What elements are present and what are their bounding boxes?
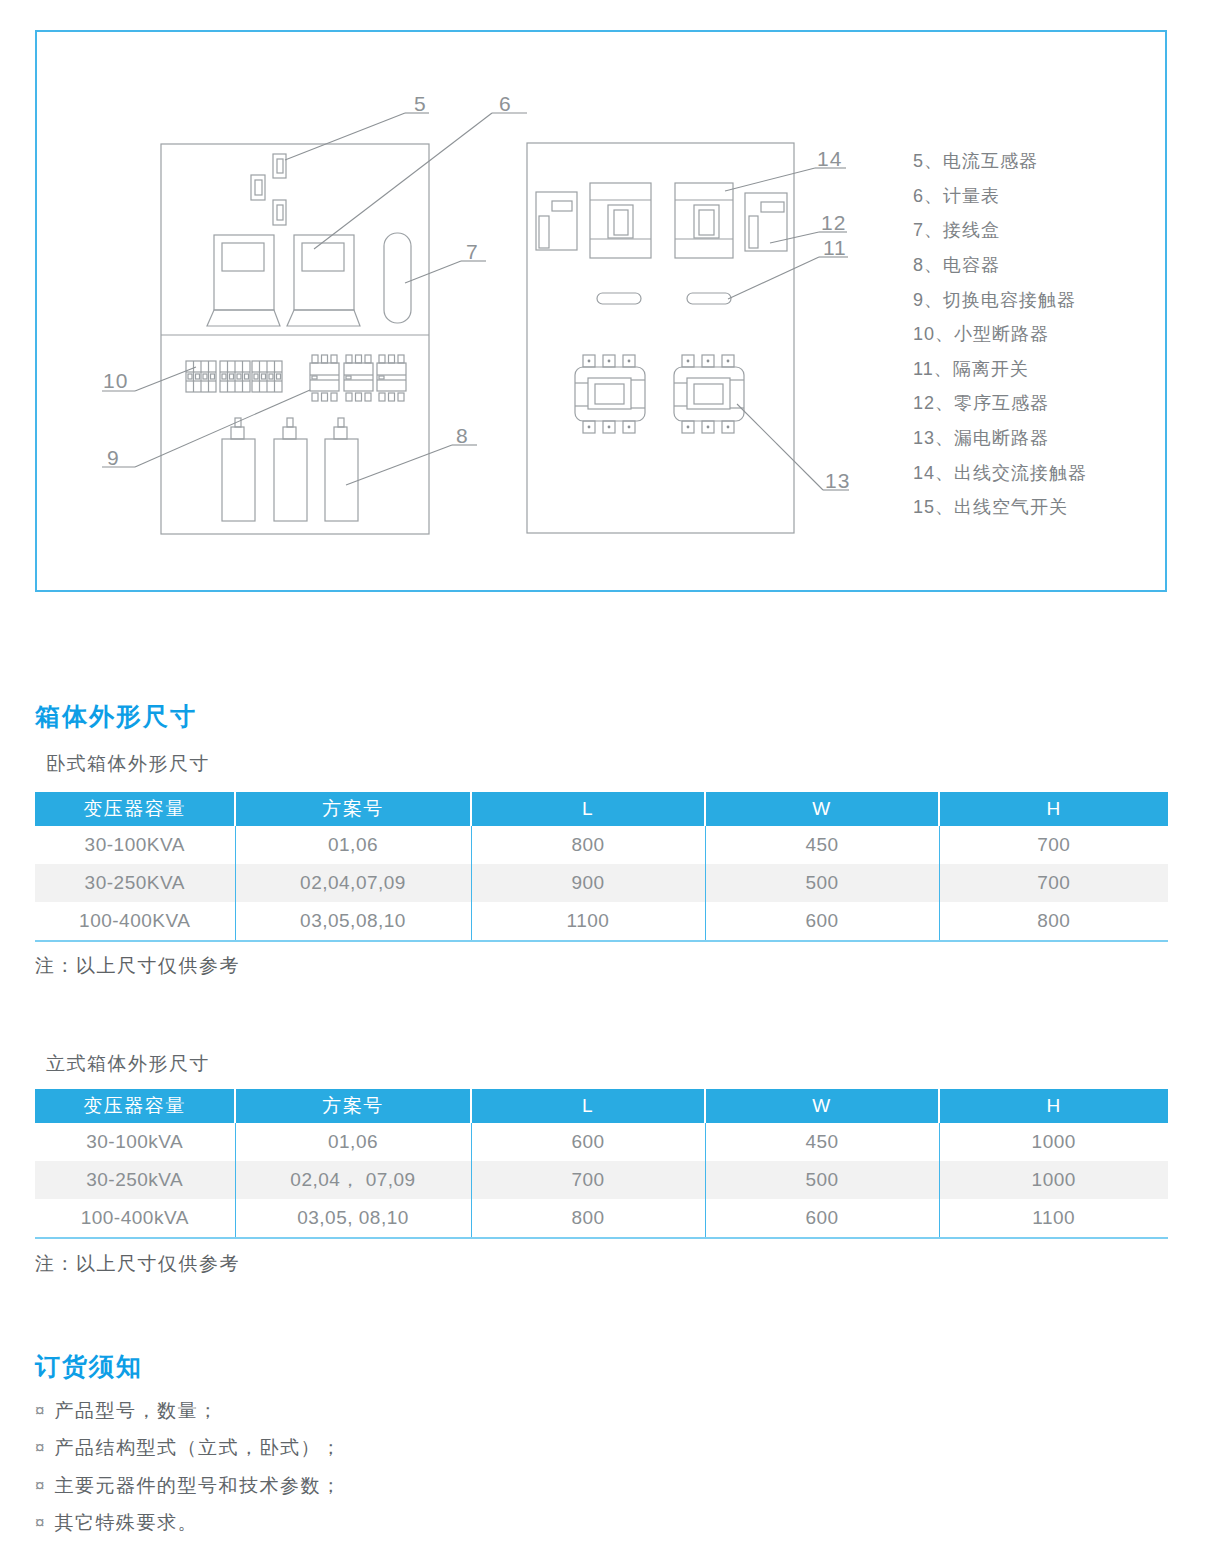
currency-bullet-icon: ¤ <box>35 1401 44 1421</box>
legend-item: 14、出线交流接触器 <box>913 455 1087 490</box>
column-header: H <box>939 792 1168 826</box>
table-cell: 1000 <box>939 1161 1168 1199</box>
currency-bullet-icon: ¤ <box>35 1476 44 1496</box>
current-transformers <box>251 154 286 225</box>
table-row: 30-250KVA 02,04,07,09 900 500 700 <box>35 864 1168 902</box>
table-cell: 01,06 <box>235 826 471 864</box>
list-item: ¤ 产品结构型式（立式，卧式）； <box>35 1430 341 1468</box>
callout-6: 6 <box>314 92 527 249</box>
column-header: L <box>471 792 705 826</box>
table-cell: 500 <box>705 1161 939 1199</box>
table-cell: 02,04,07,09 <box>235 864 471 902</box>
column-header: W <box>705 792 939 826</box>
capacitor-contactors <box>310 355 406 401</box>
table-cell: 700 <box>939 864 1168 902</box>
diagram-panel: 5 6 7 10 9 8 1 <box>35 30 1167 592</box>
left-cabinet-drawing <box>161 144 429 534</box>
junction-box <box>384 233 411 323</box>
table-cell: 700 <box>471 1161 705 1199</box>
table-cell: 30-100KVA <box>35 826 235 864</box>
column-header: 变压器容量 <box>35 1089 235 1123</box>
table-cell: 450 <box>705 826 939 864</box>
table-cell: 800 <box>471 1199 705 1238</box>
list-item: ¤ 产品型号，数量； <box>35 1392 341 1430</box>
callout-10: 10 <box>102 367 196 392</box>
table-row: 30-100kVA 01,06 600 450 1000 <box>35 1123 1168 1161</box>
ordering-notes-list: ¤ 产品型号，数量； ¤ 产品结构型式（立式，卧式）； ¤ 主要元器件的型号和技… <box>35 1392 341 1542</box>
table-cell: 30-100kVA <box>35 1123 235 1161</box>
svg-text:9: 9 <box>107 446 120 469</box>
component-legend: 5、电流互感器 6、计量表 7、接线盒 8、电容器 9、切换电容接触器 10、小… <box>913 144 1087 525</box>
table-cell: 500 <box>705 864 939 902</box>
mini-circuit-breakers <box>186 361 282 392</box>
column-header: H <box>939 1089 1168 1123</box>
callout-11: 11 <box>728 236 848 299</box>
column-header: W <box>705 1089 939 1123</box>
table-cell: 600 <box>471 1123 705 1161</box>
section-title-dimensions: 箱体外形尺寸 <box>35 700 197 733</box>
table-cell: 1100 <box>471 902 705 941</box>
svg-text:6: 6 <box>499 92 512 115</box>
right-cabinet-drawing <box>527 143 794 533</box>
column-header: 方案号 <box>235 792 471 826</box>
list-item: ¤ 主要元器件的型号和技术参数； <box>35 1467 341 1505</box>
subtitle-vertical-cabinet: 立式箱体外形尺寸 <box>46 1051 210 1077</box>
note-vertical-table: 注：以上尺寸仅供参考 <box>35 1251 240 1277</box>
isolating-switches <box>597 293 731 304</box>
outgoing-ac-contactors <box>575 355 744 433</box>
ordering-item-text: 其它特殊要求。 <box>54 1510 198 1536</box>
capacitors <box>222 418 358 521</box>
subtitle-horizontal-cabinet: 卧式箱体外形尺寸 <box>46 751 210 777</box>
table-cell: 02,04， 07,09 <box>235 1161 471 1199</box>
table-row: 30-250kVA 02,04， 07,09 700 500 1000 <box>35 1161 1168 1199</box>
svg-text:8: 8 <box>456 424 469 447</box>
section-title-ordering: 订货须知 <box>35 1350 143 1383</box>
table-cell: 30-250KVA <box>35 864 235 902</box>
currency-bullet-icon: ¤ <box>35 1438 44 1458</box>
legend-item: 8、电容器 <box>913 248 1087 283</box>
callout-5: 5 <box>285 92 429 160</box>
legend-item: 5、电流互感器 <box>913 144 1087 179</box>
column-header: L <box>471 1089 705 1123</box>
horizontal-dimensions-table: 变压器容量 方案号 L W H 30-100KVA 01,06 800 450 … <box>35 792 1168 942</box>
callout-8: 8 <box>346 424 477 485</box>
table-cell: 800 <box>939 902 1168 941</box>
table-row: 30-100KVA 01,06 800 450 700 <box>35 826 1168 864</box>
callout-9: 9 <box>102 390 310 469</box>
svg-text:13: 13 <box>825 469 850 492</box>
legend-item: 12、零序互感器 <box>913 386 1087 421</box>
table-cell: 03,05,08,10 <box>235 902 471 941</box>
svg-text:5: 5 <box>414 92 427 115</box>
table-cell: 100-400KVA <box>35 902 235 941</box>
table-cell: 1000 <box>939 1123 1168 1161</box>
table-cell: 450 <box>705 1123 939 1161</box>
table-cell: 100-400kVA <box>35 1199 235 1238</box>
svg-text:12: 12 <box>821 211 846 234</box>
legend-item: 13、漏电断路器 <box>913 421 1087 456</box>
table-cell: 03,05, 08,10 <box>235 1199 471 1238</box>
legend-item: 15、出线空气开关 <box>913 490 1087 525</box>
table-cell: 01,06 <box>235 1123 471 1161</box>
ordering-item-text: 产品结构型式（立式，卧式）； <box>54 1435 341 1461</box>
svg-text:7: 7 <box>466 240 479 263</box>
table-header-row: 变压器容量 方案号 L W H <box>35 792 1168 826</box>
column-header: 方案号 <box>235 1089 471 1123</box>
legend-item: 10、小型断路器 <box>913 317 1087 352</box>
callout-7: 7 <box>405 240 486 283</box>
vertical-dimensions-table: 变压器容量 方案号 L W H 30-100kVA 01,06 600 450 … <box>35 1089 1168 1239</box>
svg-text:10: 10 <box>103 369 128 392</box>
meter-left-box <box>536 192 577 250</box>
ordering-item-text: 产品型号，数量； <box>54 1398 218 1424</box>
table-cell: 900 <box>471 864 705 902</box>
note-horizontal-table: 注：以上尺寸仅供参考 <box>35 953 240 979</box>
table-cell: 600 <box>705 1199 939 1238</box>
table-row: 100-400kVA 03,05, 08,10 800 600 1100 <box>35 1199 1168 1238</box>
legend-item: 11、隔离开关 <box>913 352 1087 387</box>
table-cell: 1100 <box>939 1199 1168 1238</box>
svg-text:11: 11 <box>823 236 847 259</box>
list-item: ¤ 其它特殊要求。 <box>35 1505 341 1543</box>
table-cell: 800 <box>471 826 705 864</box>
table-cell: 700 <box>939 826 1168 864</box>
legend-item: 6、计量表 <box>913 179 1087 214</box>
table-row: 100-400KVA 03,05,08,10 1100 600 800 <box>35 902 1168 941</box>
energy-meters <box>207 235 360 326</box>
svg-text:14: 14 <box>817 147 842 170</box>
currency-bullet-icon: ¤ <box>35 1513 44 1533</box>
legend-item: 9、切换电容接触器 <box>913 282 1087 317</box>
table-cell: 30-250kVA <box>35 1161 235 1199</box>
mccb-breaker-1 <box>590 183 651 258</box>
zero-sequence-transformer-box <box>745 193 787 251</box>
callout-14: 14 <box>725 147 846 191</box>
column-header: 变压器容量 <box>35 792 235 826</box>
table-header-row: 变压器容量 方案号 L W H <box>35 1089 1168 1123</box>
ordering-item-text: 主要元器件的型号和技术参数； <box>54 1473 341 1499</box>
mccb-breaker-2 <box>675 183 733 258</box>
legend-item: 7、接线盒 <box>913 213 1087 248</box>
table-cell: 600 <box>705 902 939 941</box>
